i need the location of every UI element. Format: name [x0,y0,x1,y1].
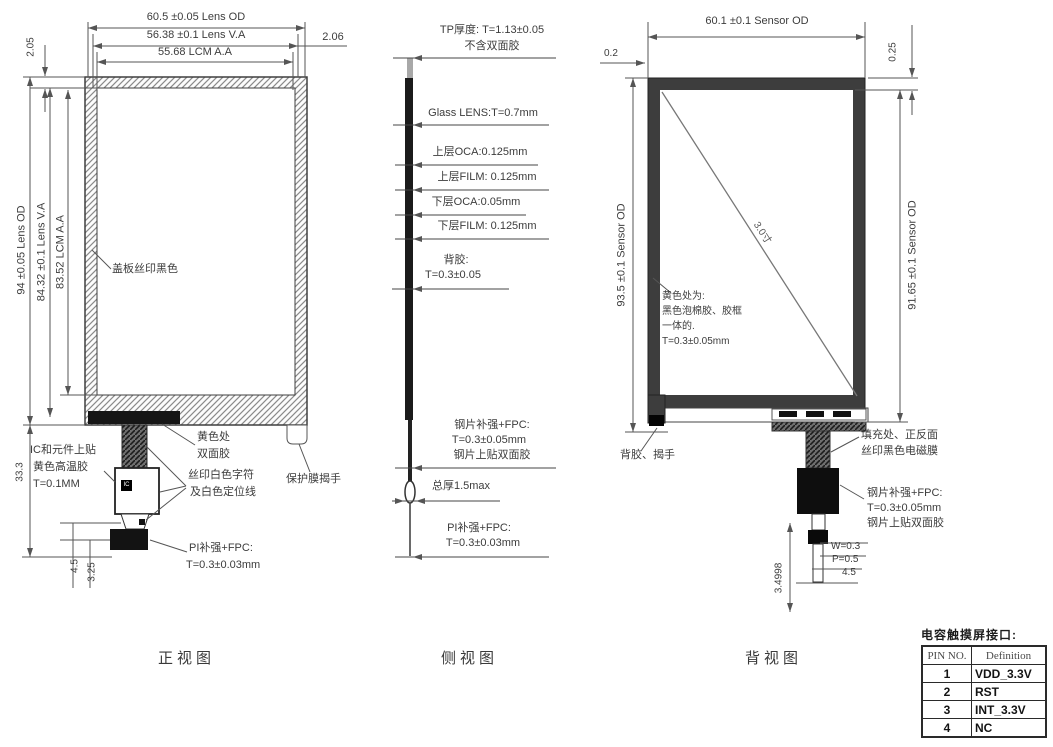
dim-4-5: 4.5 [69,559,82,573]
pin-cell: 4 [922,719,972,738]
dim-lens-od-top: 60.5 ±0.05 Lens OD [147,11,245,24]
dim-lens-va-left: 84.32 ±0.1 Lens V.A [36,203,49,302]
label-film-top: 上层FILM: 0.125mm [437,171,536,184]
pin-cell: 2 [922,683,972,701]
dim-0-2: 0.2 [604,47,618,60]
caption-back-view: 背视图 [745,652,802,665]
label-foam-4: T=0.3±0.05mm [662,335,729,348]
dim-3-25: 3.25 [86,562,99,581]
dim-2-05: 2.05 [25,37,38,56]
label-steel-side-2: T=0.3±0.05mm [452,434,526,447]
label-yellow-2: 双面胶 [197,448,230,461]
label-back-glue-1: 背胶: [443,254,468,267]
label-tp-thickness-2: 不含双面胶 [465,40,520,53]
pin-col-header: PIN NO. [922,646,972,665]
dim-lcm-aa-left: 83.52 LCM A.A [55,215,68,289]
pin-cell: 3 [922,701,972,719]
front-view-drawing [22,22,347,588]
label-back-glue-tab: 背胶、揭手 [620,449,675,462]
label-total-thickness: 总厚1.5max [432,480,490,493]
label-glass-lens: Glass LENS:T=0.7mm [428,107,538,120]
table-row: 4 NC [922,719,1046,738]
label-foam-3: 一体的. [662,320,695,333]
table-row: 1 VDD_3.3V [922,665,1046,683]
label-pi-side-2: T=0.3±0.03mm [446,537,520,550]
dim-sensor-od-right: 91.65 ±0.1 Sensor OD [907,200,920,309]
label-steel-side-1: 钢片补强+FPC: [454,419,529,432]
table-row: 3 INT_3.3V [922,701,1046,719]
label-ic-note-3: T=0.1MM [33,478,80,491]
label-ic-note-1: IC和元件上贴 [30,444,96,457]
caption-front-view: 正视图 [158,652,215,665]
def-col-header: Definition [972,646,1047,665]
dim-lcm-aa-top: 55.68 LCM A.A [158,46,232,59]
def-cell: NC [972,719,1047,738]
dim-w-0-3: W=0.3 [831,540,860,553]
pin-table: 电容触摸屏接口: PIN NO. Definition 1 VDD_3.3V 2… [921,626,1051,738]
label-pi-front-2: T=0.3±0.03mm [186,559,260,572]
label-back-glue-2: T=0.3±0.05 [425,269,481,282]
dim-3-4998: 3.4998 [773,563,786,594]
label-foam-1: 黄色处为: [662,290,705,303]
engineering-drawing-page: 60.5 ±0.05 Lens OD 56.38 ±0.1 Lens V.A 5… [0,0,1053,747]
pin-cell: 1 [922,665,972,683]
caption-side-view: 侧视图 [441,652,498,665]
label-film-bottom: 下层FILM: 0.125mm [437,220,536,233]
dim-2-06: 2.06 [322,31,343,44]
label-oca-bottom: 下层OCA:0.05mm [432,196,521,209]
label-steel-back-3: 钢片上贴双面胶 [867,517,944,530]
dim-lens-od-left: 94 ±0.05 Lens OD [16,205,29,294]
dim-33-3: 33.3 [14,462,27,481]
label-silk-1: 丝印白色字符 [188,469,254,482]
label-fill-1: 填充处、正反面 [861,429,938,442]
def-cell: RST [972,683,1047,701]
pin-definition-table: PIN NO. Definition 1 VDD_3.3V 2 RST 3 IN… [921,645,1047,738]
label-pi-side-1: PI补强+FPC: [447,522,511,535]
label-silk-2: 及白色定位线 [190,486,256,499]
pin-table-title: 电容触摸屏接口: [921,626,1051,643]
label-steel-side-3: 钢片上贴双面胶 [454,449,531,462]
dim-4-5-back: 4.5 [842,566,856,579]
dim-sensor-od-left: 93.5 ±0.1 Sensor OD [616,203,629,306]
label-yellow-1: 黄色处 [197,431,230,444]
label-cover-print: 盖板丝印黑色 [112,263,178,276]
table-row: 2 RST [922,683,1046,701]
pin-table-header-row: PIN NO. Definition [922,646,1046,665]
label-pi-front-1: PI补强+FPC: [189,542,253,555]
label-ic-note-2: 黄色高温胶 [33,461,88,474]
dim-0-25: 0.25 [887,42,900,61]
label-steel-back-1: 钢片补强+FPC: [867,487,942,500]
ic-chip-mark: IC [121,480,132,491]
label-oca-top: 上层OCA:0.125mm [433,146,528,159]
label-tp-thickness-1: TP厚度: T=1.13±0.05 [440,24,544,37]
label-foam-2: 黑色泡棉胶、胶框 [662,305,742,318]
label-protect-tab: 保护膜揭手 [286,473,341,486]
dim-lens-va-top: 56.38 ±0.1 Lens V.A [147,29,246,42]
label-steel-back-2: T=0.3±0.05mm [867,502,941,515]
label-fill-2: 丝印黑色电磁膜 [861,445,938,458]
def-cell: VDD_3.3V [972,665,1047,683]
dim-p-0-5: P=0.5 [832,553,858,566]
dim-sensor-od-top: 60.1 ±0.1 Sensor OD [705,15,808,28]
def-cell: INT_3.3V [972,701,1047,719]
